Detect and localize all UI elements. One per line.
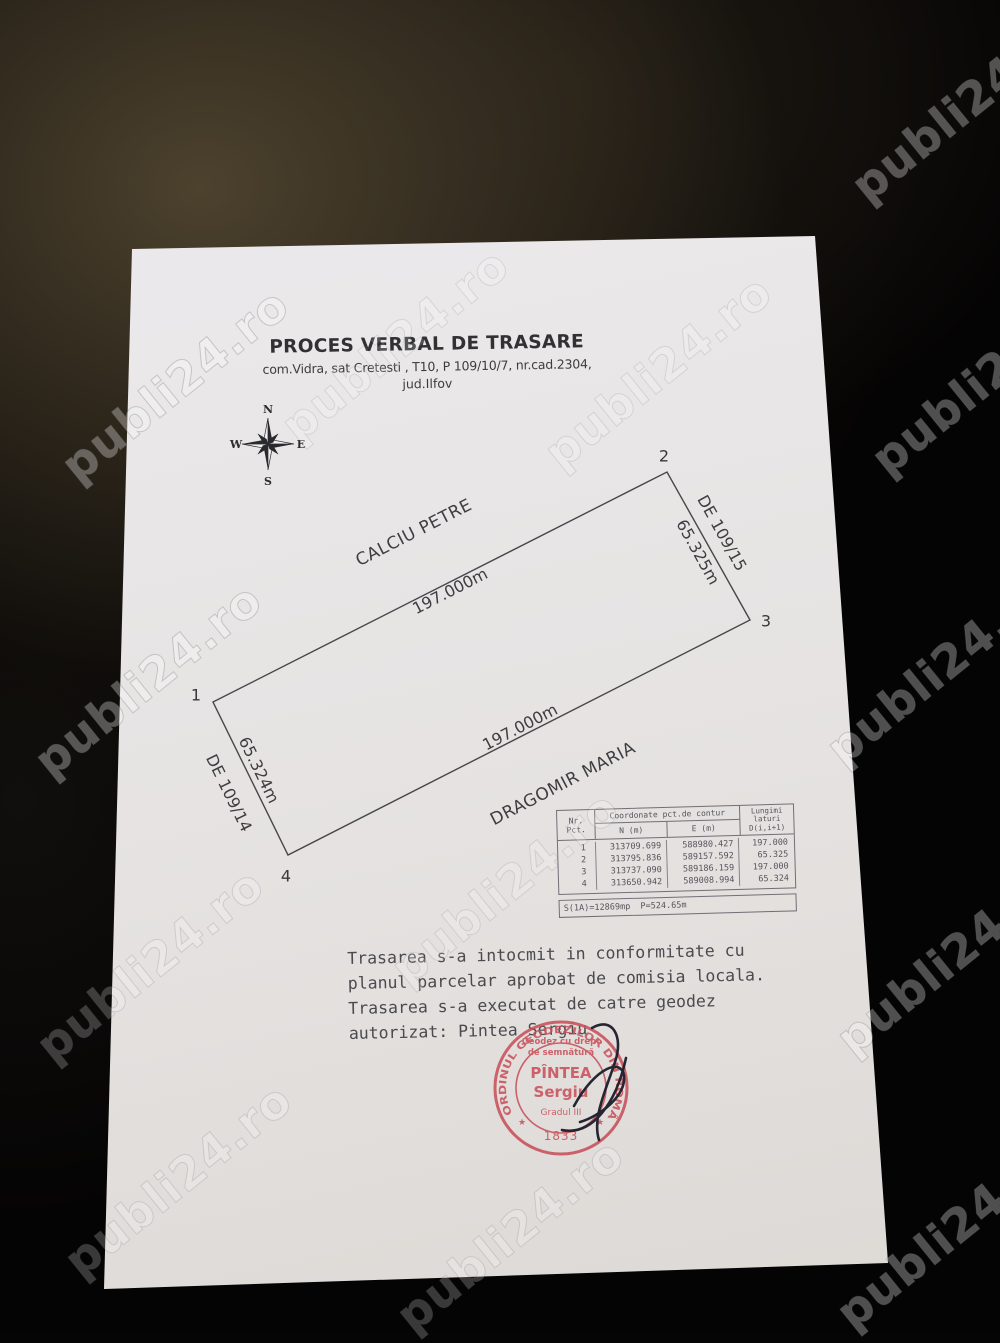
stamp-grade: Gradul III [541,1108,582,1118]
stamp-subtitle-line1: Geodez cu drept [522,1037,601,1047]
parcel-outline [213,472,750,855]
cell-point-number: 2 [558,854,596,867]
stamp-surname: PÎNTEA [530,1063,592,1082]
stamp-star-left-icon: ★ [518,1118,526,1128]
stamp-subtitle-line2: de semnătură [528,1048,595,1058]
cell-point-number: 4 [559,878,597,891]
surveyor-stamp: ORDINUL GEODEZILOR DIN ROMÂNIA Geodez cu… [461,988,661,1188]
corner-label-1: 1 [191,686,201,705]
corner-label-4: 4 [281,867,291,886]
photo-of-document: PROCES VERBAL DE TRASARE com.Vidra, sat … [0,0,1000,1333]
cell-point-number: 1 [558,842,596,855]
header-nr-line1: Nr. [569,816,584,825]
stamp-firstname: Sergiu [534,1083,589,1101]
cell-north: 313650.942 [597,876,669,890]
header-nr-line2: Pct. [566,825,586,835]
cell-point-number: 3 [559,866,597,879]
header-north-column: N (m) [596,822,668,839]
header-length-line3: D(i,i+1) [749,823,785,833]
cell-length: 65.324 [740,872,795,886]
corner-label-3: 3 [761,612,771,631]
corner-label-2: 2 [659,447,669,466]
cell-east: 589008.994 [668,874,741,888]
coordinates-table: Nr. Pct. Coordonate pct.de contur N (m) … [556,803,797,918]
header-east-column: E (m) [668,820,740,837]
